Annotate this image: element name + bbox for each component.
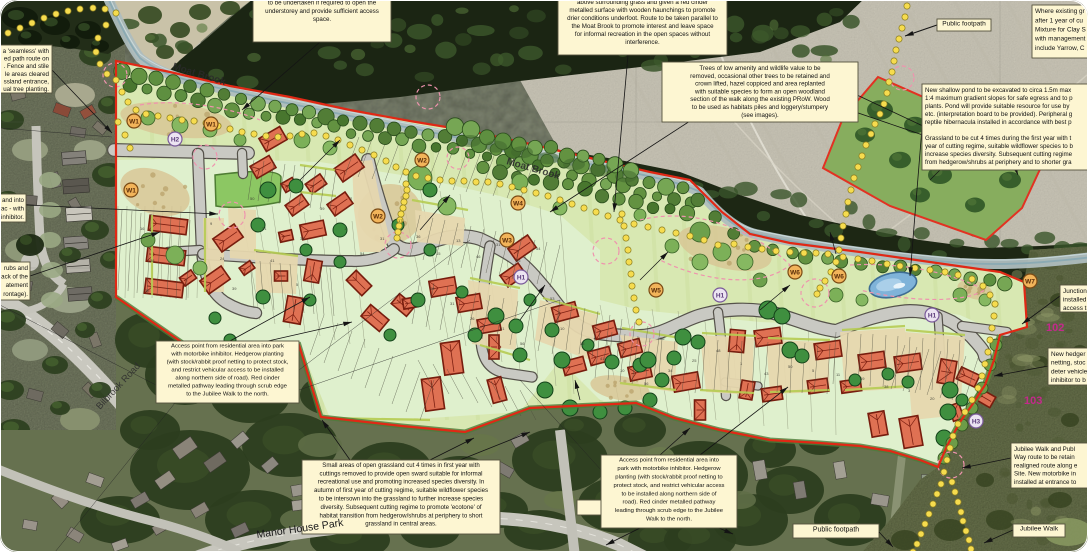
svg-text:access tr: access tr [1063, 305, 1088, 312]
svg-text:to be intersown into the grass: to be intersown into the grassland to fu… [319, 496, 483, 503]
svg-text:Mixture for Clay S: Mixture for Clay S [1035, 27, 1086, 34]
svg-text:H3: H3 [972, 418, 981, 425]
svg-text:1:4 maximum gradient slopes fo: 1:4 maximum gradient slopes for safe egr… [925, 95, 1073, 102]
svg-text:Walk to the north.: Walk to the north. [646, 517, 692, 523]
svg-text:for informal recreation in the: for informal recreation in the open spac… [575, 31, 710, 38]
svg-text:54: 54 [360, 251, 365, 256]
svg-text:deter vehicle: deter vehicle [1051, 368, 1088, 375]
svg-text:25: 25 [692, 358, 697, 363]
svg-text:installed at entrance to: installed at entrance to [1014, 479, 1077, 486]
svg-text:protect stock, and restrict ve: protect stock, and restrict vehicular ac… [614, 483, 725, 489]
svg-text:W2: W2 [373, 213, 383, 220]
svg-text:10: 10 [620, 368, 625, 373]
svg-text:removed, occasional other tree: removed, occasional other trees to be re… [690, 73, 830, 80]
svg-text:H2: H2 [171, 136, 180, 143]
svg-text:Access point from residential: Access point from residential area into [619, 458, 720, 464]
svg-text:with suitable species to form: with suitable species to form an open wo… [694, 88, 826, 95]
svg-text:(see images).: (see images). [741, 112, 779, 119]
svg-text:interference.: interference. [625, 39, 660, 46]
svg-text:35: 35 [516, 258, 521, 263]
svg-text:16: 16 [140, 226, 145, 231]
svg-text:ssland entrance,: ssland entrance, [4, 78, 50, 85]
svg-text:include Yarrow, C: include Yarrow, C [1035, 45, 1085, 52]
svg-text:H1: H1 [928, 312, 937, 319]
svg-text:Trees of low amenity and wildl: Trees of low amenity and wildlife value … [699, 65, 821, 72]
svg-text:41: 41 [270, 258, 275, 263]
svg-text:20: 20 [930, 396, 935, 401]
svg-text:15: 15 [580, 341, 585, 346]
svg-text:increase species diversity. Su: increase species diversity. Subsequent c… [925, 151, 1073, 158]
svg-text:cuttings removed to provide op: cuttings removed to provide open sward s… [320, 470, 483, 477]
svg-text:recreational use and promoting: recreational use and promoting increased… [318, 479, 485, 486]
svg-text:y and into: y and into [0, 197, 25, 204]
svg-text:a 'seamless' with: a 'seamless' with [3, 48, 50, 55]
svg-text:diversity. Subsequent cutting: diversity. Subsequent cutting regime to … [320, 504, 481, 511]
svg-text:plants. Pond will provide suit: plants. Pond will provide suitable resou… [925, 103, 1070, 110]
svg-text:36: 36 [430, 286, 435, 291]
svg-text:W4: W4 [513, 200, 523, 207]
svg-text:15: 15 [436, 251, 441, 256]
svg-text:autumn of first year of cuttin: autumn of first year of cutting regime, … [314, 487, 488, 494]
svg-text:W1: W1 [126, 187, 136, 194]
svg-text:to the Jubilee Walk to the nor: to the Jubilee Walk to the north. [186, 392, 269, 398]
svg-text:50: 50 [250, 196, 255, 201]
svg-text:56: 56 [644, 381, 649, 386]
svg-text:31: 31 [450, 301, 455, 306]
svg-text:26: 26 [470, 316, 475, 321]
svg-text:H1: H1 [716, 292, 725, 299]
svg-text:rubs and: rubs and [4, 265, 29, 272]
svg-text:understorey and provide suffic: understorey and provide sufficient acces… [265, 8, 379, 15]
svg-text:17: 17 [398, 218, 403, 223]
svg-text:Grassland to be cut 4 times du: Grassland to be cut 4 times during the f… [925, 135, 1071, 142]
svg-text:leading through scrub edge to: leading through scrub edge to the Jubile… [615, 508, 724, 514]
svg-text:road). Red cinder metalled pat: road). Red cinder metalled pathway [623, 500, 716, 506]
svg-text:24: 24 [220, 256, 225, 261]
svg-text:39: 39 [320, 206, 325, 211]
svg-text:rontage).: rontage). [3, 291, 28, 298]
svg-text:with management: with management [1034, 36, 1086, 43]
svg-text:49: 49 [860, 376, 865, 381]
svg-text:56: 56 [520, 341, 525, 346]
svg-text:H1: H1 [517, 274, 526, 281]
svg-text:along northern side of road).: along northern side of road). Red cinder [175, 376, 279, 382]
svg-text:Public footpath: Public footpath [942, 20, 986, 27]
svg-text:. Fence and stile: . Fence and stile [4, 63, 50, 70]
svg-text:W7: W7 [1025, 278, 1035, 285]
svg-text:inhibitor to b: inhibitor to b [1051, 377, 1086, 384]
svg-text:36: 36 [416, 234, 421, 239]
svg-text:Site. New motorbike in: Site. New motorbike in [1014, 471, 1076, 478]
svg-text:to be used as habitats piles a: to be used as habitats piles and loggery… [692, 104, 829, 111]
svg-text:35: 35 [145, 288, 150, 293]
svg-text:netting, stoc: netting, stoc [1051, 360, 1086, 367]
svg-text:sac - with: sac - with [0, 205, 25, 212]
svg-text:metalled pathway leading throu: metalled pathway leading through scrub e… [168, 384, 288, 390]
svg-text:metalled surface with wooden h: metalled surface with wooden haunchings … [569, 7, 716, 14]
svg-text:park with motorbike inhibitor.: park with motorbike inhibitor. Hedgerow [617, 466, 721, 472]
svg-text:to be installed along northern: to be installed along northern side of [622, 491, 717, 497]
svg-text:and restrict vehicular access: and restrict vehicular access to be inst… [171, 368, 283, 374]
svg-text:38: 38 [884, 384, 889, 389]
svg-text:Access point from residential: Access point from residential area into … [171, 344, 284, 350]
svg-text:Way route to be retain: Way route to be retain [1014, 454, 1075, 461]
svg-text:102: 102 [1046, 322, 1064, 334]
svg-text:grassland in central areas.: grassland in central areas. [365, 521, 437, 528]
svg-text:39: 39 [232, 286, 237, 291]
svg-text:atement: atement [6, 282, 29, 289]
svg-text:New shallow pond to be excavat: New shallow pond to be excavated to circ… [925, 87, 1072, 94]
svg-text:ual tree planting.: ual tree planting. [3, 86, 49, 93]
svg-text:ack of the: ack of the [1, 274, 28, 281]
svg-text:W2: W2 [417, 157, 427, 164]
svg-text:31: 31 [262, 226, 267, 231]
svg-text:54: 54 [536, 246, 541, 251]
svg-text:34: 34 [668, 368, 673, 373]
svg-text:after 1 year of cu: after 1 year of cu [1035, 17, 1083, 24]
svg-text:43: 43 [764, 371, 769, 376]
svg-text:habitat transition from hedger: habitat transition from hedgerow/shrubs … [320, 512, 483, 519]
svg-text:W6: W6 [834, 273, 844, 280]
svg-text:W1: W1 [129, 118, 139, 125]
svg-text:46: 46 [476, 254, 481, 259]
svg-text:31: 31 [380, 236, 385, 241]
svg-text:38: 38 [300, 236, 305, 241]
svg-text:41: 41 [600, 356, 605, 361]
svg-text:Small areas of open grassland: Small areas of open grassland cut 4 time… [322, 462, 480, 469]
svg-text:inhibitor.: inhibitor. [1, 214, 24, 221]
svg-text:50: 50 [788, 364, 793, 369]
svg-text:section of the walk along the: section of the walk along the existing P… [690, 96, 830, 103]
svg-text:drier conditions underfoot. Ro: drier conditions underfoot. Route to be … [567, 15, 718, 22]
svg-text:48: 48 [716, 348, 721, 353]
svg-text:W6: W6 [790, 269, 800, 276]
svg-text:W1: W1 [206, 121, 216, 128]
svg-text:10: 10 [560, 326, 565, 331]
svg-text:from hedgerow/shrubs at periph: from hedgerow/shrubs at periphery and to… [925, 159, 1072, 166]
svg-text:53: 53 [550, 296, 555, 301]
svg-text:ed path route on: ed path route on [4, 56, 50, 63]
svg-text:Public footpath: Public footpath [813, 527, 859, 534]
svg-text:56: 56 [660, 336, 665, 341]
svg-text:Jubilee Walk and Publ: Jubilee Walk and Publ [1014, 446, 1075, 453]
svg-text:realigned route along e: realigned route along e [1014, 462, 1078, 469]
svg-text:W5: W5 [651, 287, 661, 294]
svg-text:Junction t: Junction t [1063, 288, 1088, 295]
svg-text:(with stock/rabbit proof netti: (with stock/rabbit proof netting to prot… [167, 360, 289, 366]
svg-text:New hedger: New hedger [1051, 351, 1086, 358]
svg-text:reptile hibernacula installed: reptile hibernacula installed in accorda… [925, 119, 1072, 126]
svg-text:le areas cleared: le areas cleared [5, 71, 50, 78]
svg-text:41: 41 [500, 326, 505, 331]
svg-text:Where existing gr: Where existing gr [1035, 8, 1086, 15]
svg-text:crown lifted, hazel coppiced a: crown lifted, hazel coppiced and area re… [695, 81, 825, 88]
svg-text:the Moat Brook to promote inte: the Moat Brook to promote interest and l… [571, 23, 714, 30]
svg-text:with motorbike inhibitor. Hedg: with motorbike inhibitor. Hedgerow plant… [170, 352, 283, 358]
svg-text:103: 103 [1024, 395, 1042, 407]
svg-text:13: 13 [456, 238, 461, 243]
svg-text:38: 38 [150, 258, 155, 263]
svg-text:31: 31 [496, 242, 501, 247]
svg-text:W3: W3 [502, 237, 512, 244]
svg-text:year of cutting regime, suitab: year of cutting regime, suitable wildflo… [925, 143, 1073, 150]
svg-text:etc. (interpretation board to: etc. (interpretation board to be provide… [925, 111, 1073, 118]
svg-text:planting (with stock/rabbit pr: planting (with stock/rabbit proof nettin… [615, 475, 723, 481]
svg-text:space.: space. [313, 16, 332, 23]
svg-text:Jubilee Walk: Jubilee Walk [1020, 525, 1059, 532]
svg-text:installed t: installed t [1063, 297, 1088, 304]
